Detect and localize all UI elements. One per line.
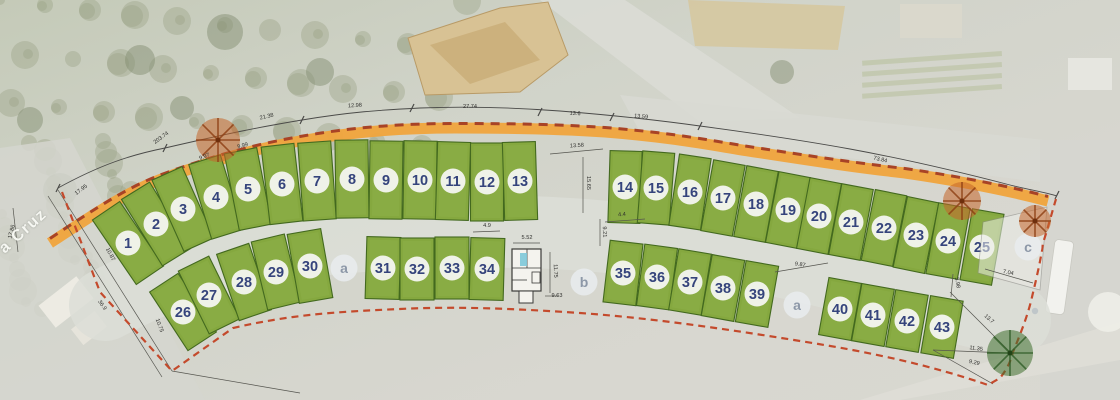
plot-letter-c-3[interactable]: c: [1015, 234, 1042, 261]
olive-tree-dot: [329, 75, 357, 103]
olive-tree-dot: [37, 1, 47, 11]
dimension-label: 13.59: [634, 113, 648, 120]
footprint-stair-blue: [520, 253, 527, 266]
dimension-label: 13.6: [569, 111, 580, 118]
site-plan-canvas: 1234567891011121314151617181920212223242…: [0, 0, 1120, 400]
tree-canopy-blob: [17, 107, 43, 133]
olive-tree-dot: [287, 73, 309, 95]
olive-tree-dot: [79, 3, 95, 19]
plot-number-badge-38: 38: [711, 276, 736, 301]
plot-number-badge-28: 28: [232, 270, 257, 295]
tree-canopy-blob: [170, 96, 194, 120]
plot-number-badge-13: 13: [508, 169, 533, 194]
site-plan-map: 1234567891011121314151617181920212223242…: [0, 0, 1120, 400]
dimension-label: 15.65: [585, 176, 591, 190]
plot-number-text: 35: [615, 266, 631, 282]
tree-canopy-blob: [306, 58, 334, 86]
photo-building-north: [688, 0, 845, 50]
olive-tree-dot: [51, 103, 61, 113]
plot-number-text: 34: [479, 262, 495, 278]
plot-number-badge-43: 43: [930, 315, 955, 340]
plot-number-text: 10: [412, 173, 428, 189]
olive-tree-dot: [65, 51, 81, 67]
dimension-label: 11.75: [552, 264, 558, 278]
plot-number-text: 17: [715, 191, 731, 207]
plot-number-badge-21: 21: [839, 210, 864, 235]
tree-canopy-blob: [207, 14, 243, 50]
dimension-label: 203.74: [153, 131, 170, 146]
plot-number-text: 3: [179, 202, 187, 218]
plot-number-badge-4: 4: [204, 185, 229, 210]
plot-letter-text: b: [580, 274, 589, 290]
plot-number-badge-24: 24: [936, 229, 961, 254]
olive-tree-dot: [11, 41, 39, 69]
plot-number-text: 32: [409, 262, 425, 278]
plot-number-text: 43: [934, 320, 950, 336]
tree-trunk: [960, 199, 965, 204]
photo-building-small: [900, 4, 962, 38]
plot-number-badge-10: 10: [408, 168, 433, 193]
plot-number-text: 29: [268, 265, 284, 281]
olive-tree-dot: [0, 0, 5, 5]
olive-tree-dot: [189, 117, 199, 127]
plot-number-badge-18: 18: [744, 192, 769, 217]
tree-canopy-blob: [125, 45, 155, 75]
plot-number-text: 21: [843, 215, 859, 231]
tree-canopy-blob: [770, 60, 794, 84]
plot-number-badge-16: 16: [678, 180, 703, 205]
olive-tree-dot: [95, 133, 111, 149]
plot-number-badge-17: 17: [711, 186, 736, 211]
plot-number-text: 4: [212, 190, 220, 206]
olive-tree-dot: [135, 107, 157, 129]
plot-number-text: 23: [908, 228, 924, 244]
plot-number-badge-6: 6: [270, 172, 295, 197]
plot-number-text: 28: [236, 275, 252, 291]
plot-number-badge-31: 31: [371, 256, 396, 281]
plot-number-badge-1: 1: [116, 231, 141, 256]
plot-number-badge-7: 7: [305, 169, 330, 194]
plot-number-badge-40: 40: [828, 297, 853, 322]
dimension-label: 9.63: [552, 293, 563, 299]
dimension-label: 4.9: [483, 223, 491, 229]
plot-letter-text: c: [1024, 239, 1032, 255]
photo-building-right: [1068, 58, 1112, 90]
plot-number-badge-15: 15: [644, 176, 669, 201]
plot-number-text: 42: [899, 314, 915, 330]
plot-number-text: 41: [865, 308, 881, 324]
tree-trunk: [1033, 219, 1038, 224]
olive-tree-dot: [93, 105, 109, 121]
plot-number-badge-29: 29: [264, 260, 289, 285]
plot-number-badge-14: 14: [613, 175, 638, 200]
plot-number-text: 24: [940, 234, 956, 250]
plot-number-badge-2: 2: [144, 212, 169, 237]
plot-number-text: 7: [313, 174, 321, 190]
plot-number-badge-39: 39: [745, 282, 770, 307]
plot-number-text: 11: [445, 174, 460, 190]
orange-tree-symbol-2: [1019, 205, 1051, 237]
plot-number-text: 33: [444, 261, 460, 277]
plot-number-badge-12: 12: [475, 170, 500, 195]
dimension-label: 13.58: [570, 143, 584, 150]
plot-number-text: 30: [302, 259, 318, 275]
plot-number-text: 31: [375, 261, 391, 277]
dimension-label: 4.4: [618, 212, 626, 218]
plot-letter-a-0[interactable]: a: [331, 255, 358, 282]
plot-number-text: 14: [617, 180, 633, 196]
plot-number-badge-41: 41: [861, 303, 886, 328]
plot-number-text: 13: [512, 174, 528, 190]
plot-number-badge-3: 3: [171, 197, 196, 222]
plot-number-text: 19: [780, 203, 796, 219]
olive-tree-dot: [355, 35, 365, 45]
plot-letter-text: a: [340, 260, 348, 276]
plot-number-badge-8: 8: [340, 167, 365, 192]
plot-number-badge-23: 23: [904, 223, 929, 248]
dimension-label: 9.21: [601, 226, 608, 237]
plot-number-text: 6: [278, 177, 286, 193]
orange-tree-symbol-1: [943, 182, 981, 220]
plot-number-badge-27: 27: [197, 283, 222, 308]
plot-number-text: 39: [749, 287, 765, 303]
plot-number-badge-11: 11: [441, 169, 466, 194]
plot-number-text: 40: [832, 302, 848, 318]
plot-number-text: 26: [175, 305, 191, 321]
olive-tree-dot: [453, 0, 481, 15]
tree-trunk: [216, 138, 221, 143]
olive-tree-dot: [121, 5, 143, 27]
building-footprint-plan: [512, 249, 541, 303]
plot-number-badge-35: 35: [611, 261, 636, 286]
plot-number-text: 38: [715, 281, 731, 297]
tree-trunk: [1008, 351, 1013, 356]
plot-letter-b-1[interactable]: b: [571, 269, 598, 296]
measurement-tick: [610, 113, 614, 121]
plot-number-text: 22: [876, 221, 892, 237]
plot-number-badge-9: 9: [374, 168, 399, 193]
plot-number-text: 8: [348, 172, 356, 188]
plot-number-badge-5: 5: [236, 177, 261, 202]
plot-number-text: 15: [648, 181, 664, 197]
plot-number-text: 5: [244, 182, 252, 198]
plot-number-badge-20: 20: [807, 204, 832, 229]
plot-number-badge-26: 26: [171, 300, 196, 325]
plot-number-badge-32: 32: [405, 257, 430, 282]
plot-number-text: 9: [382, 173, 390, 189]
plot-number-text: 20: [811, 209, 827, 225]
plot-number-text: 37: [682, 275, 698, 291]
dimension-label: 21.38: [259, 113, 274, 122]
footprint-annex: [519, 291, 533, 303]
plot-number-badge-37: 37: [678, 270, 703, 295]
plot-number-text: 12: [479, 175, 495, 191]
plot-number-badge-33: 33: [440, 256, 465, 281]
plot-number-text: 2: [152, 217, 160, 233]
plot-number-text: 1: [124, 236, 132, 252]
olive-tree-dot: [163, 7, 191, 35]
plot-number-badge-36: 36: [645, 265, 670, 290]
olive-tree-dot: [259, 19, 281, 41]
dimension-line: [550, 149, 603, 154]
dimension-label: 27.74: [463, 104, 477, 110]
dimension-label: 5.52: [522, 235, 533, 241]
plot-number-badge-19: 19: [776, 198, 801, 223]
dimension-label: 9.29: [968, 359, 980, 367]
plot-number-badge-22: 22: [872, 216, 897, 241]
green-tree-symbol-3: [987, 330, 1033, 376]
plot-number-badge-30: 30: [298, 254, 323, 279]
plot-number-badge-42: 42: [895, 309, 920, 334]
plot-number-text: 16: [682, 185, 698, 201]
olive-tree-dot: [301, 21, 329, 49]
olive-tree-dot: [383, 85, 399, 101]
olive-tree-dot: [245, 71, 261, 87]
plot-letter-a-2[interactable]: a: [784, 292, 811, 319]
olive-tree-dot: [203, 69, 213, 79]
plot-number-text: 27: [201, 288, 217, 304]
plot-number-text: 36: [649, 270, 665, 286]
plot-number-text: 18: [748, 197, 764, 213]
plot-letter-text: a: [793, 297, 801, 313]
dimension-label: 12.98: [348, 103, 362, 110]
plot-number-badge-34: 34: [475, 257, 500, 282]
